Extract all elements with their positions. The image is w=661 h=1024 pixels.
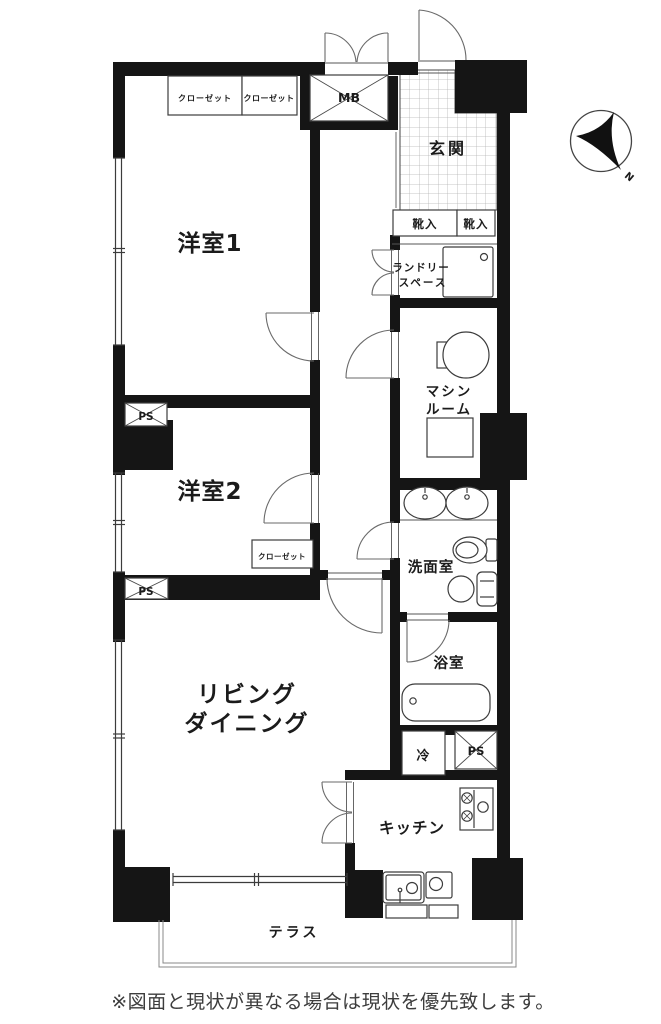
shoe-box-label-2: 靴入 <box>464 217 489 231</box>
machine-room-label-2: ルーム <box>426 402 472 418</box>
mb-label: MB <box>338 90 360 105</box>
kitchen-label: キッチン <box>379 819 445 837</box>
closet-label-3: クローゼット <box>258 551 306 561</box>
wall-block-bottom-right <box>472 858 523 920</box>
closet-label-1: クローゼット <box>178 93 232 103</box>
wall-block-top-right <box>455 60 527 113</box>
washing-machine <box>443 247 493 297</box>
bathroom-label: 浴室 <box>434 654 465 672</box>
machine-room-unit <box>427 418 473 457</box>
entrance-label: 玄関 <box>429 139 467 158</box>
kitchen-small-basin <box>426 872 452 898</box>
terrace-label: テラス <box>269 925 320 941</box>
kitchen-sink <box>383 872 424 903</box>
bathtub <box>402 684 490 721</box>
wall-block-mid-right <box>480 413 527 480</box>
ps-label-3: PS <box>468 744 485 758</box>
toilet <box>453 537 497 563</box>
living-label-1: リビング <box>197 681 297 708</box>
washroom-label: 洗面室 <box>408 558 455 576</box>
floor-plan-page: N クローゼット クローゼット MB 玄関 靴入 靴入 洋室1 ランドリー スペ… <box>0 0 661 1024</box>
laundry-label-2: スペース <box>399 277 448 289</box>
floor-plan: N クローゼット クローゼット MB 玄関 靴入 靴入 洋室1 ランドリー スペ… <box>0 0 661 1024</box>
closet-label-2: クローゼット <box>244 93 295 103</box>
disclaimer-note: ※図面と現状が異なる場合は現状を優先致します。 <box>111 991 555 1013</box>
background <box>0 0 661 1024</box>
stove <box>460 788 493 830</box>
living-label-2: ダイニング <box>185 710 310 737</box>
machine-room-label-1: マシン <box>426 384 473 400</box>
laundry-label-1: ランドリー <box>392 262 450 274</box>
ps-label-2: PS <box>138 586 153 598</box>
ps-label-1: PS <box>138 411 153 423</box>
fridge-label: 冷 <box>416 748 429 764</box>
wall-block-bottom-left <box>113 867 170 922</box>
room1-label: 洋室1 <box>177 230 242 257</box>
shoe-box-label-1: 靴入 <box>413 217 438 231</box>
room2-label: 洋室2 <box>177 478 242 505</box>
